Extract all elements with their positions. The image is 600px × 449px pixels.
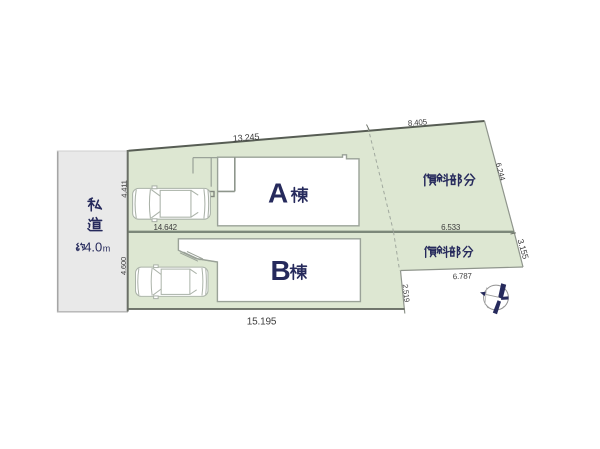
svg-text:4.600: 4.600: [119, 257, 128, 275]
svg-text:4.0: 4.0: [84, 240, 102, 255]
svg-text:4.411: 4.411: [119, 180, 128, 197]
svg-text:14.642: 14.642: [154, 223, 178, 232]
svg-text:m: m: [103, 243, 111, 253]
svg-text:A: A: [268, 178, 288, 209]
svg-text:8.405: 8.405: [408, 117, 428, 128]
svg-text:B: B: [271, 255, 291, 286]
svg-text:2.519: 2.519: [401, 284, 412, 303]
svg-text:6.787: 6.787: [453, 271, 473, 281]
svg-text:13.245: 13.245: [232, 132, 259, 144]
svg-text:6.533: 6.533: [441, 223, 461, 232]
svg-text:15.195: 15.195: [247, 317, 277, 328]
